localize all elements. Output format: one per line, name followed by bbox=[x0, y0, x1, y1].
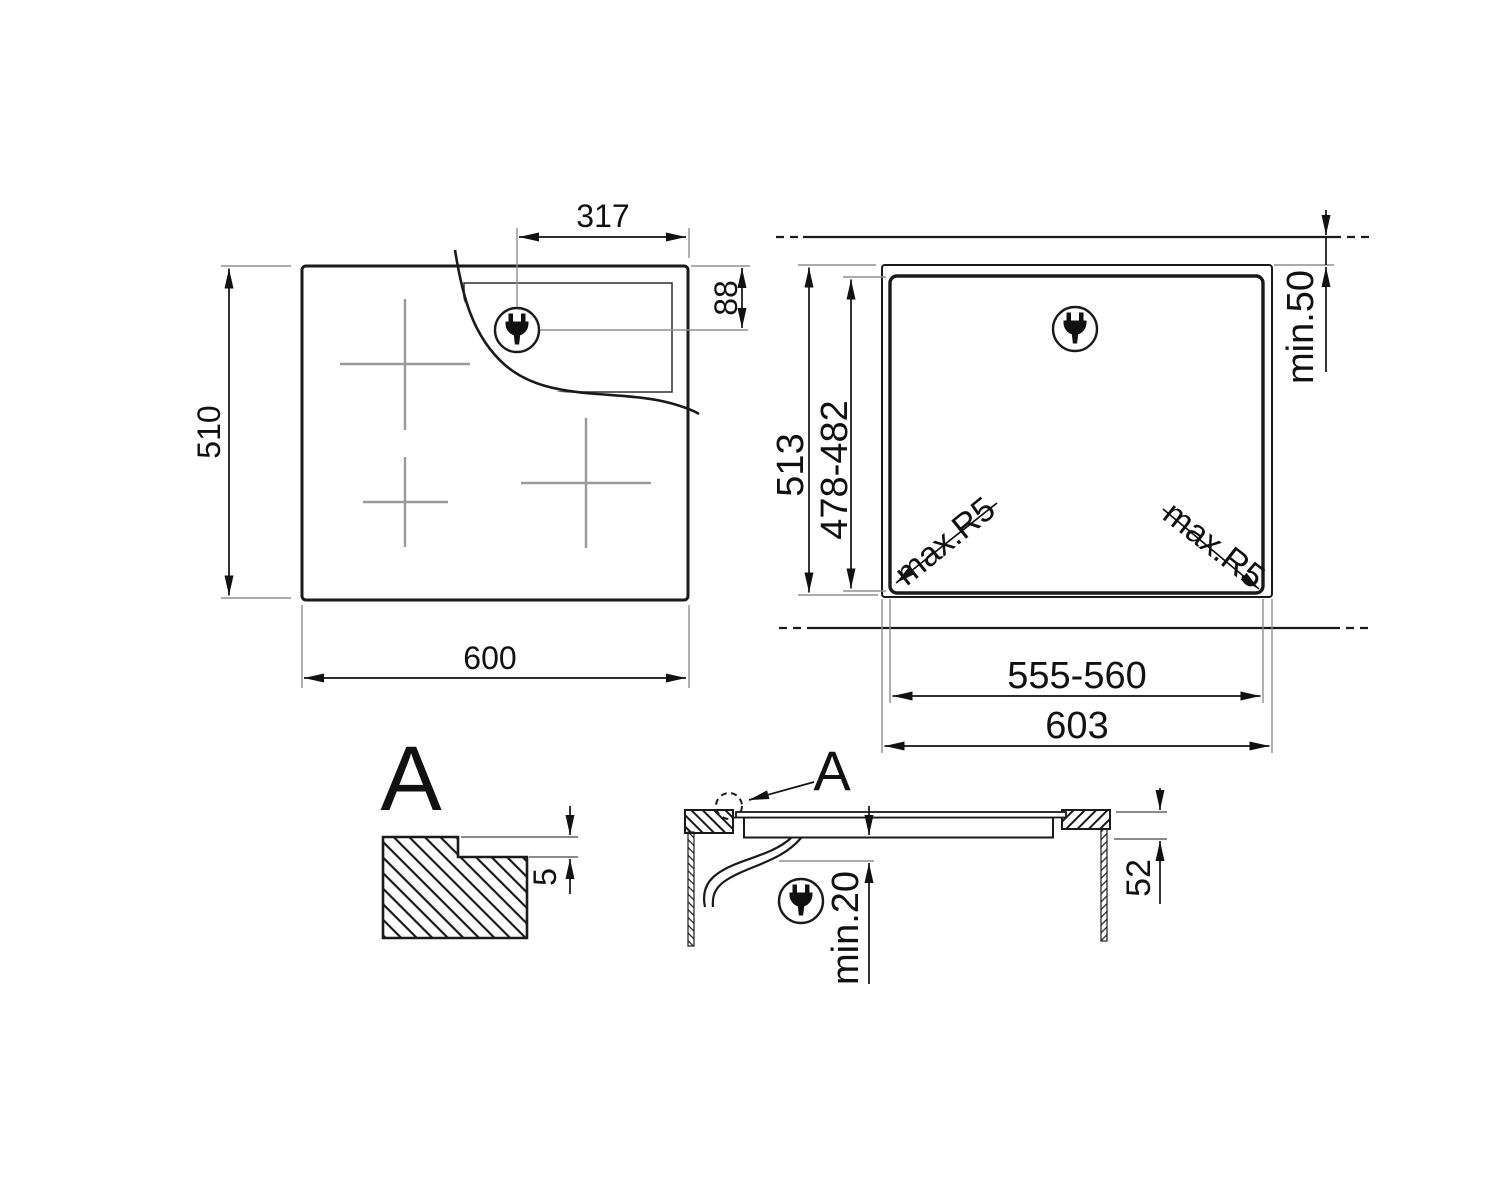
top-view: 510 600 317 88 bbox=[191, 198, 750, 688]
section-view: A min.20 52 bbox=[685, 739, 1167, 985]
cabinet-wall-left bbox=[688, 832, 694, 946]
hob-outline bbox=[302, 266, 688, 600]
dim-label-step-depth: 5 bbox=[527, 868, 563, 886]
power-plug-icon bbox=[495, 308, 539, 352]
dim-label-built-in-depth: 52 bbox=[1120, 859, 1158, 897]
technical-drawing: 510 600 317 88 m bbox=[0, 0, 1500, 1199]
dim-label-clearance-below: min.20 bbox=[825, 871, 867, 985]
power-plug-icon bbox=[779, 879, 823, 923]
dim-label-plug-x: 317 bbox=[576, 198, 629, 234]
cutout-view: max.R5 max.R5 513 478-482 min.50 555-560… bbox=[770, 210, 1375, 753]
dim-label-cutout-depth: 478-482 bbox=[814, 400, 856, 539]
worktop-section-left bbox=[685, 810, 733, 833]
power-plug-icon bbox=[1053, 307, 1097, 351]
section-callout-label: A bbox=[813, 739, 851, 802]
dim-label-outer-depth: 513 bbox=[770, 433, 812, 496]
hob-glass-section bbox=[736, 812, 1066, 818]
worktop-section-right bbox=[1062, 810, 1110, 829]
worktop-section-detail bbox=[383, 837, 527, 938]
detail-a-view: A 5 bbox=[380, 728, 578, 938]
installation-diagram-svg: 510 600 317 88 m bbox=[0, 0, 1500, 1199]
dim-label-width: 600 bbox=[463, 640, 516, 676]
detail-a-label: A bbox=[380, 728, 442, 830]
dim-label-outer-width: 603 bbox=[1045, 705, 1108, 747]
dim-label-depth: 510 bbox=[191, 405, 227, 458]
cabinet-wall-right bbox=[1101, 829, 1107, 941]
dim-label-wall-clearance: min.50 bbox=[1280, 270, 1322, 384]
callout-arrow bbox=[749, 782, 814, 800]
dim-label-cutout-width: 555-560 bbox=[1007, 655, 1146, 697]
hob-body-section bbox=[744, 818, 1053, 838]
dim-label-plug-y: 88 bbox=[708, 280, 744, 316]
